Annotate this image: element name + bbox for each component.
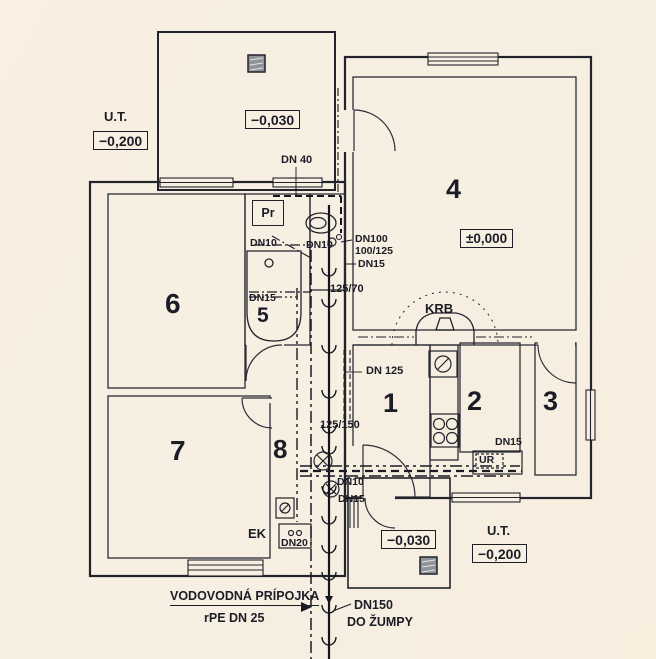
door-arc-terrace-bottom xyxy=(365,498,395,528)
dn150-destination-label: DO ŽUMPY xyxy=(347,616,413,629)
door-arc-terrace-to-room4 xyxy=(354,110,395,151)
fireplace-label: KRB xyxy=(425,302,453,315)
pipe-connector-icon xyxy=(337,235,342,240)
terrace-top-level: −0,030 xyxy=(245,110,300,129)
room-number-8: 8 xyxy=(273,436,287,462)
floor-plan-drawing xyxy=(0,0,656,659)
fireplace-icon xyxy=(358,292,532,345)
window-icon xyxy=(452,493,520,502)
dn150-label: DN150 xyxy=(354,599,393,612)
flow-arrow-icon xyxy=(325,596,333,604)
door-arc-room3 xyxy=(538,345,576,383)
size-100-125-label: 100/125 xyxy=(355,246,393,257)
dn20-label: DN20 xyxy=(281,538,308,549)
water-service-spec: rPE DN 25 xyxy=(204,612,264,625)
window-icon xyxy=(160,178,233,187)
dn15-bath-label: DN15 xyxy=(249,293,276,304)
toilet-icon xyxy=(306,213,336,233)
room-number-1: 1 xyxy=(383,390,398,417)
main-floor-level: ±0,000 xyxy=(460,229,513,248)
ut-top-value: −0,200 xyxy=(93,131,148,150)
boiler-label: UR xyxy=(479,455,494,466)
ek-sink-icon xyxy=(276,498,294,518)
dn125-label: DN 125 xyxy=(366,366,403,377)
dn15-hall-label: DN15 xyxy=(338,494,365,505)
washing-machine-box: Pr xyxy=(252,200,284,226)
entrance-steps-icon xyxy=(188,560,263,576)
dn40-label: DN 40 xyxy=(281,155,312,166)
cooktop-icon xyxy=(431,414,459,447)
ut-bottom-label: U.T. xyxy=(487,524,510,537)
water-service-label: VODOVODNÁ PRÍPOJKA xyxy=(170,590,319,606)
ek-label: EK xyxy=(248,527,266,540)
size-125-150-label: 125/150 xyxy=(320,420,360,431)
window-icon xyxy=(273,178,322,187)
terrace-bottom-level: −0,030 xyxy=(381,530,436,549)
door-arc-bathroom xyxy=(246,345,282,381)
window-icon xyxy=(428,53,498,65)
drain-grate-icon xyxy=(420,557,437,574)
room-number-3: 3 xyxy=(543,388,558,415)
room-number-6: 6 xyxy=(165,290,181,318)
dn10-hall-label: DN10 xyxy=(337,477,364,488)
door-openings xyxy=(240,110,575,502)
room-number-5: 5 xyxy=(257,305,269,326)
drain-grate-icon xyxy=(248,55,265,72)
dn10-wc-label: DN10 xyxy=(306,240,333,251)
room-number-2: 2 xyxy=(467,388,482,415)
ut-bottom-value: −0,200 xyxy=(472,544,527,563)
kitchen-sink-icon xyxy=(429,351,457,377)
size-125-70-label: 125/70 xyxy=(330,284,364,295)
window-icon xyxy=(586,390,595,440)
room-number-4: 4 xyxy=(446,176,461,203)
sewer-pipe xyxy=(322,205,336,659)
ut-top-label: U.T. xyxy=(104,110,127,123)
dn15-boiler-label: DN15 xyxy=(495,437,522,448)
floor-plan-page: U.T. −0,200 −0,030 DN 40 Pr DN10 DN10 DN… xyxy=(0,0,656,659)
dn15-wc-label: DN15 xyxy=(358,259,385,270)
room-number-7: 7 xyxy=(170,437,186,465)
dn100-label: DN100 xyxy=(355,234,388,245)
dn10-washer-label: DN10 xyxy=(250,238,277,249)
